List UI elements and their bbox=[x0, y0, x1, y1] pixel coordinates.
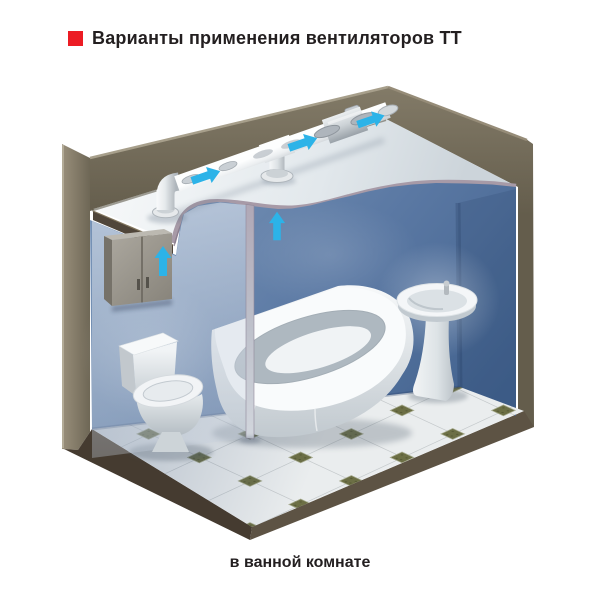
cutaway-wall-edge bbox=[246, 205, 254, 440]
page-title: Варианты применения вентиляторов ТТ bbox=[92, 28, 462, 49]
cabinet-side bbox=[104, 236, 112, 306]
cutaway-wall-edge-shadow bbox=[239, 437, 261, 443]
duct-tee-flange-top bbox=[266, 169, 288, 178]
header: Варианты применения вентиляторов ТТ bbox=[68, 28, 462, 49]
sink-faucet-head bbox=[444, 281, 450, 287]
cabinet-handle-left bbox=[137, 279, 140, 290]
cabinet-handle-right bbox=[146, 277, 149, 288]
page: Варианты применения вентиляторов ТТ в ва… bbox=[0, 0, 600, 600]
caption: в ванной комнате bbox=[0, 554, 600, 572]
bathroom-illustration bbox=[0, 0, 600, 600]
left-outer-wall bbox=[62, 144, 90, 450]
red-square-bullet-icon bbox=[68, 31, 83, 46]
